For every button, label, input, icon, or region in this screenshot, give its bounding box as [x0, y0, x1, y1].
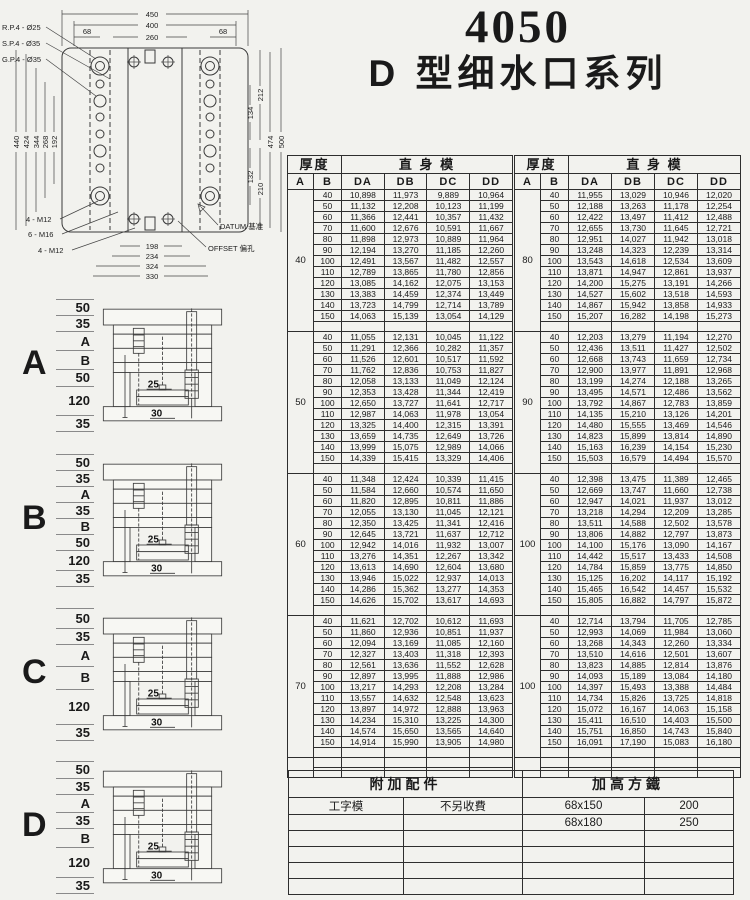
- price-value: 13,126: [654, 409, 697, 420]
- price-value: 15,751: [569, 726, 612, 737]
- price-value: 10,045: [427, 332, 470, 343]
- thickness-b: 130: [541, 573, 569, 584]
- acc-row: [289, 879, 734, 895]
- thickness-b: 70: [314, 507, 342, 518]
- thickness-b: 150: [314, 311, 342, 322]
- thickness-b: 140: [541, 300, 569, 311]
- price-value: 11,600: [342, 223, 385, 234]
- price-value: 14,201: [697, 409, 740, 420]
- price-value: 13,007: [470, 540, 513, 551]
- dim-label: A: [56, 795, 94, 814]
- price-row: 13013,94615,02212,93714,013: [288, 573, 513, 584]
- price-value: 14,286: [342, 584, 385, 595]
- price-value: 13,871: [569, 267, 612, 278]
- header-row: 厚度直 身 模: [288, 156, 513, 174]
- dim-label: B: [56, 351, 94, 370]
- column-header-row: ABDADBDCDD: [288, 174, 513, 190]
- acc-cell: 不另收費: [404, 798, 523, 815]
- price-value: 13,265: [697, 376, 740, 387]
- price-value: 12,424: [384, 474, 427, 485]
- acc-header-row: 附加配件加高方鐵: [289, 771, 734, 798]
- col-dd: DD: [470, 174, 513, 190]
- acc-cell: [645, 879, 734, 895]
- price-value: 14,933: [697, 300, 740, 311]
- price-value: 11,942: [654, 234, 697, 245]
- separator-row: [288, 748, 513, 758]
- price-value: 14,593: [697, 289, 740, 300]
- price-row: 15016,09117,19015,08316,180: [515, 737, 741, 748]
- price-row: 10012,65013,72711,64112,717: [288, 398, 513, 409]
- price-row: 7013,21814,29412,20913,285: [515, 507, 741, 518]
- dim-label: 35: [56, 416, 94, 432]
- price-value: 15,555: [612, 420, 655, 431]
- price-value: 12,094: [342, 638, 385, 649]
- acc-cell: [404, 847, 523, 863]
- price-value: 15,517: [612, 551, 655, 562]
- price-value: 11,432: [470, 212, 513, 223]
- col-dd: DD: [697, 174, 740, 190]
- price-value: 15,273: [697, 311, 740, 322]
- price-value: 13,865: [384, 267, 427, 278]
- price-value: 13,085: [342, 278, 385, 289]
- price-value: 10,357: [427, 212, 470, 223]
- dim-label: 35: [56, 629, 94, 645]
- price-row: 6012,42213,49711,41212,488: [515, 212, 741, 223]
- price-value: 11,650: [470, 485, 513, 496]
- price-value: 13,721: [384, 529, 427, 540]
- price-value: 12,604: [427, 562, 470, 573]
- price-value: 10,339: [427, 474, 470, 485]
- dim-label: 50: [56, 454, 94, 471]
- price-value: 11,973: [384, 190, 427, 201]
- price-value: 11,592: [470, 354, 513, 365]
- price-value: 13,284: [470, 682, 513, 693]
- price-value: 11,415: [470, 474, 513, 485]
- dim-label: 50: [56, 608, 94, 629]
- price-row: 14014,28615,36213,27714,353: [288, 584, 513, 595]
- thickness-b: 80: [541, 518, 569, 529]
- price-value: 15,125: [569, 573, 612, 584]
- empty-row: [515, 758, 741, 768]
- price-value: 14,343: [612, 638, 655, 649]
- price-value: 10,851: [427, 627, 470, 638]
- section-letter: B: [22, 499, 47, 538]
- dim-label: 120: [56, 848, 94, 878]
- price-value: 11,693: [470, 616, 513, 627]
- price-row: 8011,89812,97310,88911,964: [288, 234, 513, 245]
- price-value: 11,978: [427, 409, 470, 420]
- thickness-b: 90: [541, 671, 569, 682]
- separator-row: [515, 322, 741, 332]
- price-value: 12,993: [569, 627, 612, 638]
- price-value: 12,785: [697, 616, 740, 627]
- price-value: 14,129: [470, 311, 513, 322]
- dim-label: B: [56, 829, 94, 848]
- acc-cell: [404, 831, 523, 847]
- price-value: 14,972: [384, 704, 427, 715]
- price-row: 15014,62615,70213,61714,693: [288, 595, 513, 606]
- price-value: 13,995: [384, 671, 427, 682]
- price-value: 13,433: [654, 551, 697, 562]
- price-value: 15,503: [569, 453, 612, 464]
- acc-cell: [289, 847, 404, 863]
- price-value: 14,799: [384, 300, 427, 311]
- price-value: 14,274: [612, 376, 655, 387]
- price-value: 14,013: [470, 573, 513, 584]
- thickness-b: 40: [314, 616, 342, 627]
- acc-cell: [645, 831, 734, 847]
- price-value: 12,668: [569, 354, 612, 365]
- price-row: 9012,89713,99511,88812,986: [288, 671, 513, 682]
- price-value: 12,208: [427, 682, 470, 693]
- price-row: 804011,95513,02910,94612,020: [515, 190, 741, 201]
- price-value: 12,650: [342, 398, 385, 409]
- thickness-b: 120: [314, 420, 342, 431]
- acc-cell: 68x150: [523, 798, 645, 815]
- price-value: 14,823: [569, 431, 612, 442]
- price-value: 12,260: [470, 245, 513, 256]
- price-value: 12,486: [654, 387, 697, 398]
- price-value: 14,154: [654, 442, 697, 453]
- price-value: 11,194: [654, 332, 697, 343]
- price-value: 12,419: [470, 387, 513, 398]
- price-value: 12,075: [427, 278, 470, 289]
- price-value: 13,425: [384, 518, 427, 529]
- price-value: 11,348: [342, 474, 385, 485]
- price-value: 15,176: [612, 540, 655, 551]
- price-value: 13,617: [427, 595, 470, 606]
- price-value: 11,357: [470, 343, 513, 354]
- dim-label: 50: [56, 370, 94, 386]
- price-value: 13,613: [342, 562, 385, 573]
- col-b: B: [314, 174, 342, 190]
- thickness-b: 130: [314, 289, 342, 300]
- thickness-b: 120: [541, 704, 569, 715]
- price-row: 11013,87114,94712,86113,937: [515, 267, 741, 278]
- thickness-b: 110: [541, 267, 569, 278]
- price-value: 13,277: [427, 584, 470, 595]
- price-value: 16,091: [569, 737, 612, 748]
- price-value: 14,027: [612, 234, 655, 245]
- thickness-b: 150: [541, 311, 569, 322]
- price-value: 13,775: [654, 562, 697, 573]
- section-dims: 5035A35B5012035: [56, 454, 94, 587]
- price-row: 9012,19413,27011,18512,260: [288, 245, 513, 256]
- price-row: 6011,52612,60110,51711,592: [288, 354, 513, 365]
- price-value: 12,660: [384, 485, 427, 496]
- thickness-b: 40: [314, 190, 342, 201]
- price-value: 14,400: [384, 420, 427, 431]
- price-value: 14,480: [569, 420, 612, 431]
- price-value: 12,738: [697, 485, 740, 496]
- price-row: 14013,99915,07512,98914,066: [288, 442, 513, 453]
- acc-cell: 250: [645, 815, 734, 831]
- price-row: 5011,58412,66010,57411,650: [288, 485, 513, 496]
- price-value: 11,318: [427, 649, 470, 660]
- price-value: 13,543: [569, 256, 612, 267]
- price-value: 13,391: [470, 420, 513, 431]
- price-value: 14,734: [569, 693, 612, 704]
- price-row: 11012,78913,86511,78012,856: [288, 267, 513, 278]
- price-value: 12,267: [427, 551, 470, 562]
- price-value: 13,823: [569, 660, 612, 671]
- price-value: 12,203: [569, 332, 612, 343]
- dim-label: 35: [56, 503, 94, 519]
- price-value: 11,344: [427, 387, 470, 398]
- thickness-b: 90: [541, 387, 569, 398]
- price-value: 16,282: [612, 311, 655, 322]
- price-value: 15,192: [697, 573, 740, 584]
- price-value: 11,621: [342, 616, 385, 627]
- thickness-b: 60: [314, 354, 342, 365]
- thickness-b: 100: [314, 398, 342, 409]
- price-row: 12014,78415,85913,77514,850: [515, 562, 741, 573]
- price-value: 14,294: [612, 507, 655, 518]
- straight-mold-header: 直 身 模: [342, 156, 513, 174]
- price-value: 15,942: [612, 300, 655, 311]
- price-value: 14,797: [654, 595, 697, 606]
- price-value: 12,861: [654, 267, 697, 278]
- price-value: 13,518: [654, 289, 697, 300]
- price-value: 16,510: [612, 715, 655, 726]
- price-value: 13,060: [697, 627, 740, 638]
- col-dc: DC: [654, 174, 697, 190]
- price-value: 12,398: [569, 474, 612, 485]
- thickness-b: 130: [314, 573, 342, 584]
- thickness-b: 60: [541, 212, 569, 223]
- price-value: 9,889: [427, 190, 470, 201]
- price-value: 13,334: [697, 638, 740, 649]
- price-value: 12,557: [470, 256, 513, 267]
- price-value: 11,964: [470, 234, 513, 245]
- price-value: 11,427: [654, 343, 697, 354]
- thickness-b: 50: [314, 627, 342, 638]
- thickness-b: 150: [314, 595, 342, 606]
- section-letter: D: [22, 806, 47, 845]
- price-value: 11,891: [654, 365, 697, 376]
- thickness-b: 100: [541, 682, 569, 693]
- thickness-b: 120: [314, 562, 342, 573]
- price-row: 8012,35013,42511,34112,416: [288, 518, 513, 529]
- price-value: 15,139: [384, 311, 427, 322]
- col-a: A: [288, 174, 314, 190]
- price-value: 12,465: [697, 474, 740, 485]
- thickness-b: 140: [314, 726, 342, 737]
- thickness-b: 100: [541, 256, 569, 267]
- price-row: 13013,65914,73512,64913,726: [288, 431, 513, 442]
- price-value: 14,784: [569, 562, 612, 573]
- price-row: 6013,26814,34312,26013,334: [515, 638, 741, 649]
- thickness-b: 80: [314, 660, 342, 671]
- price-value: 12,712: [470, 529, 513, 540]
- price-value: 13,329: [427, 453, 470, 464]
- price-row: 14015,75116,85014,74315,840: [515, 726, 741, 737]
- price-value: 13,403: [384, 649, 427, 660]
- price-value: 12,350: [342, 518, 385, 529]
- thickness-b: 120: [541, 278, 569, 289]
- acc-cell: [289, 831, 404, 847]
- dim-label: 35: [56, 571, 94, 587]
- price-value: 16,167: [612, 704, 655, 715]
- dim-label: 50: [56, 299, 94, 316]
- price-row: 13014,82315,89913,81414,890: [515, 431, 741, 442]
- price-row: 7012,32713,40311,31812,393: [288, 649, 513, 660]
- price-value: 15,075: [384, 442, 427, 453]
- thickness-a: 50: [288, 332, 314, 474]
- thickness-b: 80: [314, 518, 342, 529]
- thickness-b: 80: [541, 376, 569, 387]
- price-value: 11,937: [654, 496, 697, 507]
- col-a: A: [515, 174, 541, 190]
- price-value: 12,734: [697, 354, 740, 365]
- thickness-b: 100: [541, 540, 569, 551]
- price-value: 10,753: [427, 365, 470, 376]
- thickness-b: 110: [314, 267, 342, 278]
- thickness-header: 厚度: [288, 156, 342, 174]
- price-row: 1004012,39813,47511,38912,465: [515, 474, 741, 485]
- price-value: 12,989: [427, 442, 470, 453]
- price-value: 13,475: [612, 474, 655, 485]
- price-value: 17,190: [612, 737, 655, 748]
- col-da: DA: [342, 174, 385, 190]
- price-value: 13,217: [342, 682, 385, 693]
- thickness-b: 80: [541, 660, 569, 671]
- price-table-left: 厚度直 身 模ABDADBDCDD404010,89811,9739,88910…: [287, 155, 513, 778]
- acc-cell: [523, 847, 645, 863]
- price-value: 13,084: [654, 671, 697, 682]
- price-value: 15,859: [612, 562, 655, 573]
- col-db: DB: [384, 174, 427, 190]
- thickness-a: 90: [515, 332, 541, 474]
- price-row: 10013,79214,86712,78313,859: [515, 398, 741, 409]
- price-value: 14,527: [569, 289, 612, 300]
- price-value: 16,202: [612, 573, 655, 584]
- price-row: 704011,62112,70210,61211,693: [288, 616, 513, 627]
- price-value: 12,888: [427, 704, 470, 715]
- price-row: 8012,56113,63611,55212,628: [288, 660, 513, 671]
- header-row: 厚度直 身 模: [515, 156, 741, 174]
- mold-section-drawing: 25 30: [100, 757, 225, 897]
- price-value: 13,876: [697, 660, 740, 671]
- mold-section-drawing: 25 30: [100, 295, 225, 435]
- price-value: 13,169: [384, 638, 427, 649]
- price-value: 14,693: [470, 595, 513, 606]
- separator-row: [515, 748, 741, 758]
- thickness-b: 150: [541, 595, 569, 606]
- acc-row: [289, 831, 734, 847]
- price-value: 14,743: [654, 726, 697, 737]
- acc-cell: [289, 815, 404, 831]
- dim-label: 35: [56, 813, 94, 829]
- price-value: 13,789: [470, 300, 513, 311]
- price-row: 6012,66813,74311,65912,734: [515, 354, 741, 365]
- price-value: 13,578: [697, 518, 740, 529]
- thickness-b: 60: [541, 638, 569, 649]
- dim-label: 50: [56, 761, 94, 779]
- thickness-b: 100: [541, 398, 569, 409]
- price-value: 12,714: [569, 616, 612, 627]
- price-value: 14,093: [569, 671, 612, 682]
- price-row: 10014,10015,17613,09014,167: [515, 540, 741, 551]
- price-value: 13,858: [654, 300, 697, 311]
- price-value: 11,780: [427, 267, 470, 278]
- thickness-b: 150: [314, 453, 342, 464]
- price-value: 13,012: [697, 496, 740, 507]
- price-value: 14,016: [384, 540, 427, 551]
- price-value: 10,811: [427, 496, 470, 507]
- thickness-b: 130: [314, 715, 342, 726]
- price-value: 14,021: [612, 496, 655, 507]
- price-value: 12,353: [342, 387, 385, 398]
- price-value: 12,534: [654, 256, 697, 267]
- price-value: 15,163: [569, 442, 612, 453]
- price-value: 12,628: [470, 660, 513, 671]
- price-value: 14,546: [697, 420, 740, 431]
- price-value: 12,937: [427, 573, 470, 584]
- price-row: 11014,73415,82613,72514,818: [515, 693, 741, 704]
- thickness-b: 140: [314, 584, 342, 595]
- thickness-b: 120: [314, 278, 342, 289]
- price-value: 11,122: [470, 332, 513, 343]
- price-value: 12,973: [384, 234, 427, 245]
- dim-label: B: [56, 519, 94, 535]
- price-value: 11,185: [427, 245, 470, 256]
- price-value: 13,730: [612, 223, 655, 234]
- price-value: 13,018: [697, 234, 740, 245]
- price-row: 10012,94214,01611,93213,007: [288, 540, 513, 551]
- price-value: 13,276: [342, 551, 385, 562]
- price-row: 12014,20015,27513,19114,266: [515, 278, 741, 289]
- price-value: 14,353: [470, 584, 513, 595]
- price-value: 14,403: [654, 715, 697, 726]
- section-a: A 5035AB5012035: [8, 292, 280, 442]
- thickness-b: 70: [314, 365, 342, 376]
- price-value: 13,153: [470, 278, 513, 289]
- acc-cell: [523, 863, 645, 879]
- price-value: 14,980: [470, 737, 513, 748]
- mold-section-drawing: 25 30: [100, 450, 225, 590]
- price-value: 15,022: [384, 573, 427, 584]
- price-value: 13,199: [569, 376, 612, 387]
- col-dc: DC: [427, 174, 470, 190]
- thickness-b: 110: [541, 693, 569, 704]
- price-value: 10,889: [427, 234, 470, 245]
- price-row: 9013,49514,57112,48613,562: [515, 387, 741, 398]
- price-value: 13,383: [342, 289, 385, 300]
- price-row: 11013,27614,35112,26713,342: [288, 551, 513, 562]
- thickness-b: 130: [541, 431, 569, 442]
- price-value: 13,794: [612, 616, 655, 627]
- thickness-b: 70: [541, 223, 569, 234]
- thickness-b: 40: [541, 474, 569, 485]
- price-value: 11,955: [569, 190, 612, 201]
- price-value: 12,789: [342, 267, 385, 278]
- col-b: B: [541, 174, 569, 190]
- section-dims: 5035AB12035: [56, 608, 94, 741]
- dim-label: 120: [56, 387, 94, 417]
- acc-cell: 工字模: [289, 798, 404, 815]
- separator-row: [288, 322, 513, 332]
- price-value: 14,117: [654, 573, 697, 584]
- section-dims: 5035A35B12035: [56, 761, 94, 894]
- separator-row: [288, 606, 513, 616]
- price-value: 13,314: [697, 245, 740, 256]
- price-value: 14,850: [697, 562, 740, 573]
- dim-label: 120: [56, 551, 94, 571]
- thickness-b: 130: [541, 289, 569, 300]
- price-value: 14,198: [654, 311, 697, 322]
- thickness-b: 130: [541, 715, 569, 726]
